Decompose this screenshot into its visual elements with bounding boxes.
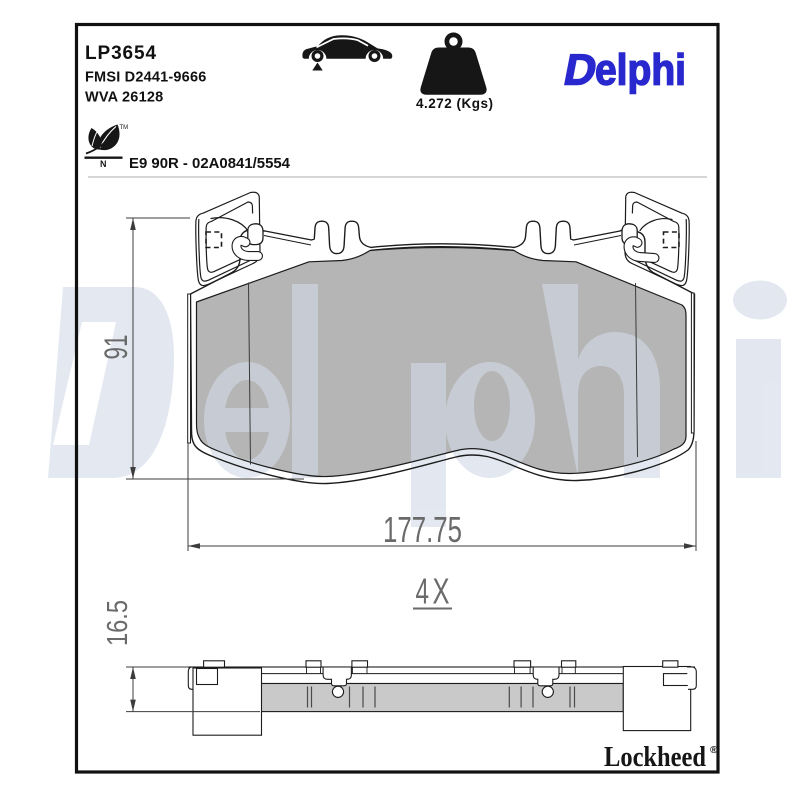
svg-text:elphi: elphi — [595, 47, 686, 95]
svg-text:Lockheed: Lockheed — [604, 742, 706, 773]
svg-text:WVA 26128: WVA 26128 — [85, 90, 163, 106]
svg-text:4.272 (Kgs): 4.272 (Kgs) — [416, 96, 493, 111]
svg-text:91: 91 — [98, 335, 134, 360]
svg-text:X: X — [433, 571, 450, 612]
svg-text:FMSI D2441-9666: FMSI D2441-9666 — [85, 70, 206, 86]
svg-text:TM: TM — [120, 125, 129, 131]
svg-text:N: N — [100, 159, 107, 169]
svg-text:LP3654: LP3654 — [85, 43, 157, 64]
svg-text:177.75: 177.75 — [383, 509, 462, 550]
svg-text:E9 90R - 02A0841/5554: E9 90R - 02A0841/5554 — [129, 155, 291, 172]
svg-text:16.5: 16.5 — [102, 600, 134, 646]
svg-text:4: 4 — [416, 571, 430, 612]
